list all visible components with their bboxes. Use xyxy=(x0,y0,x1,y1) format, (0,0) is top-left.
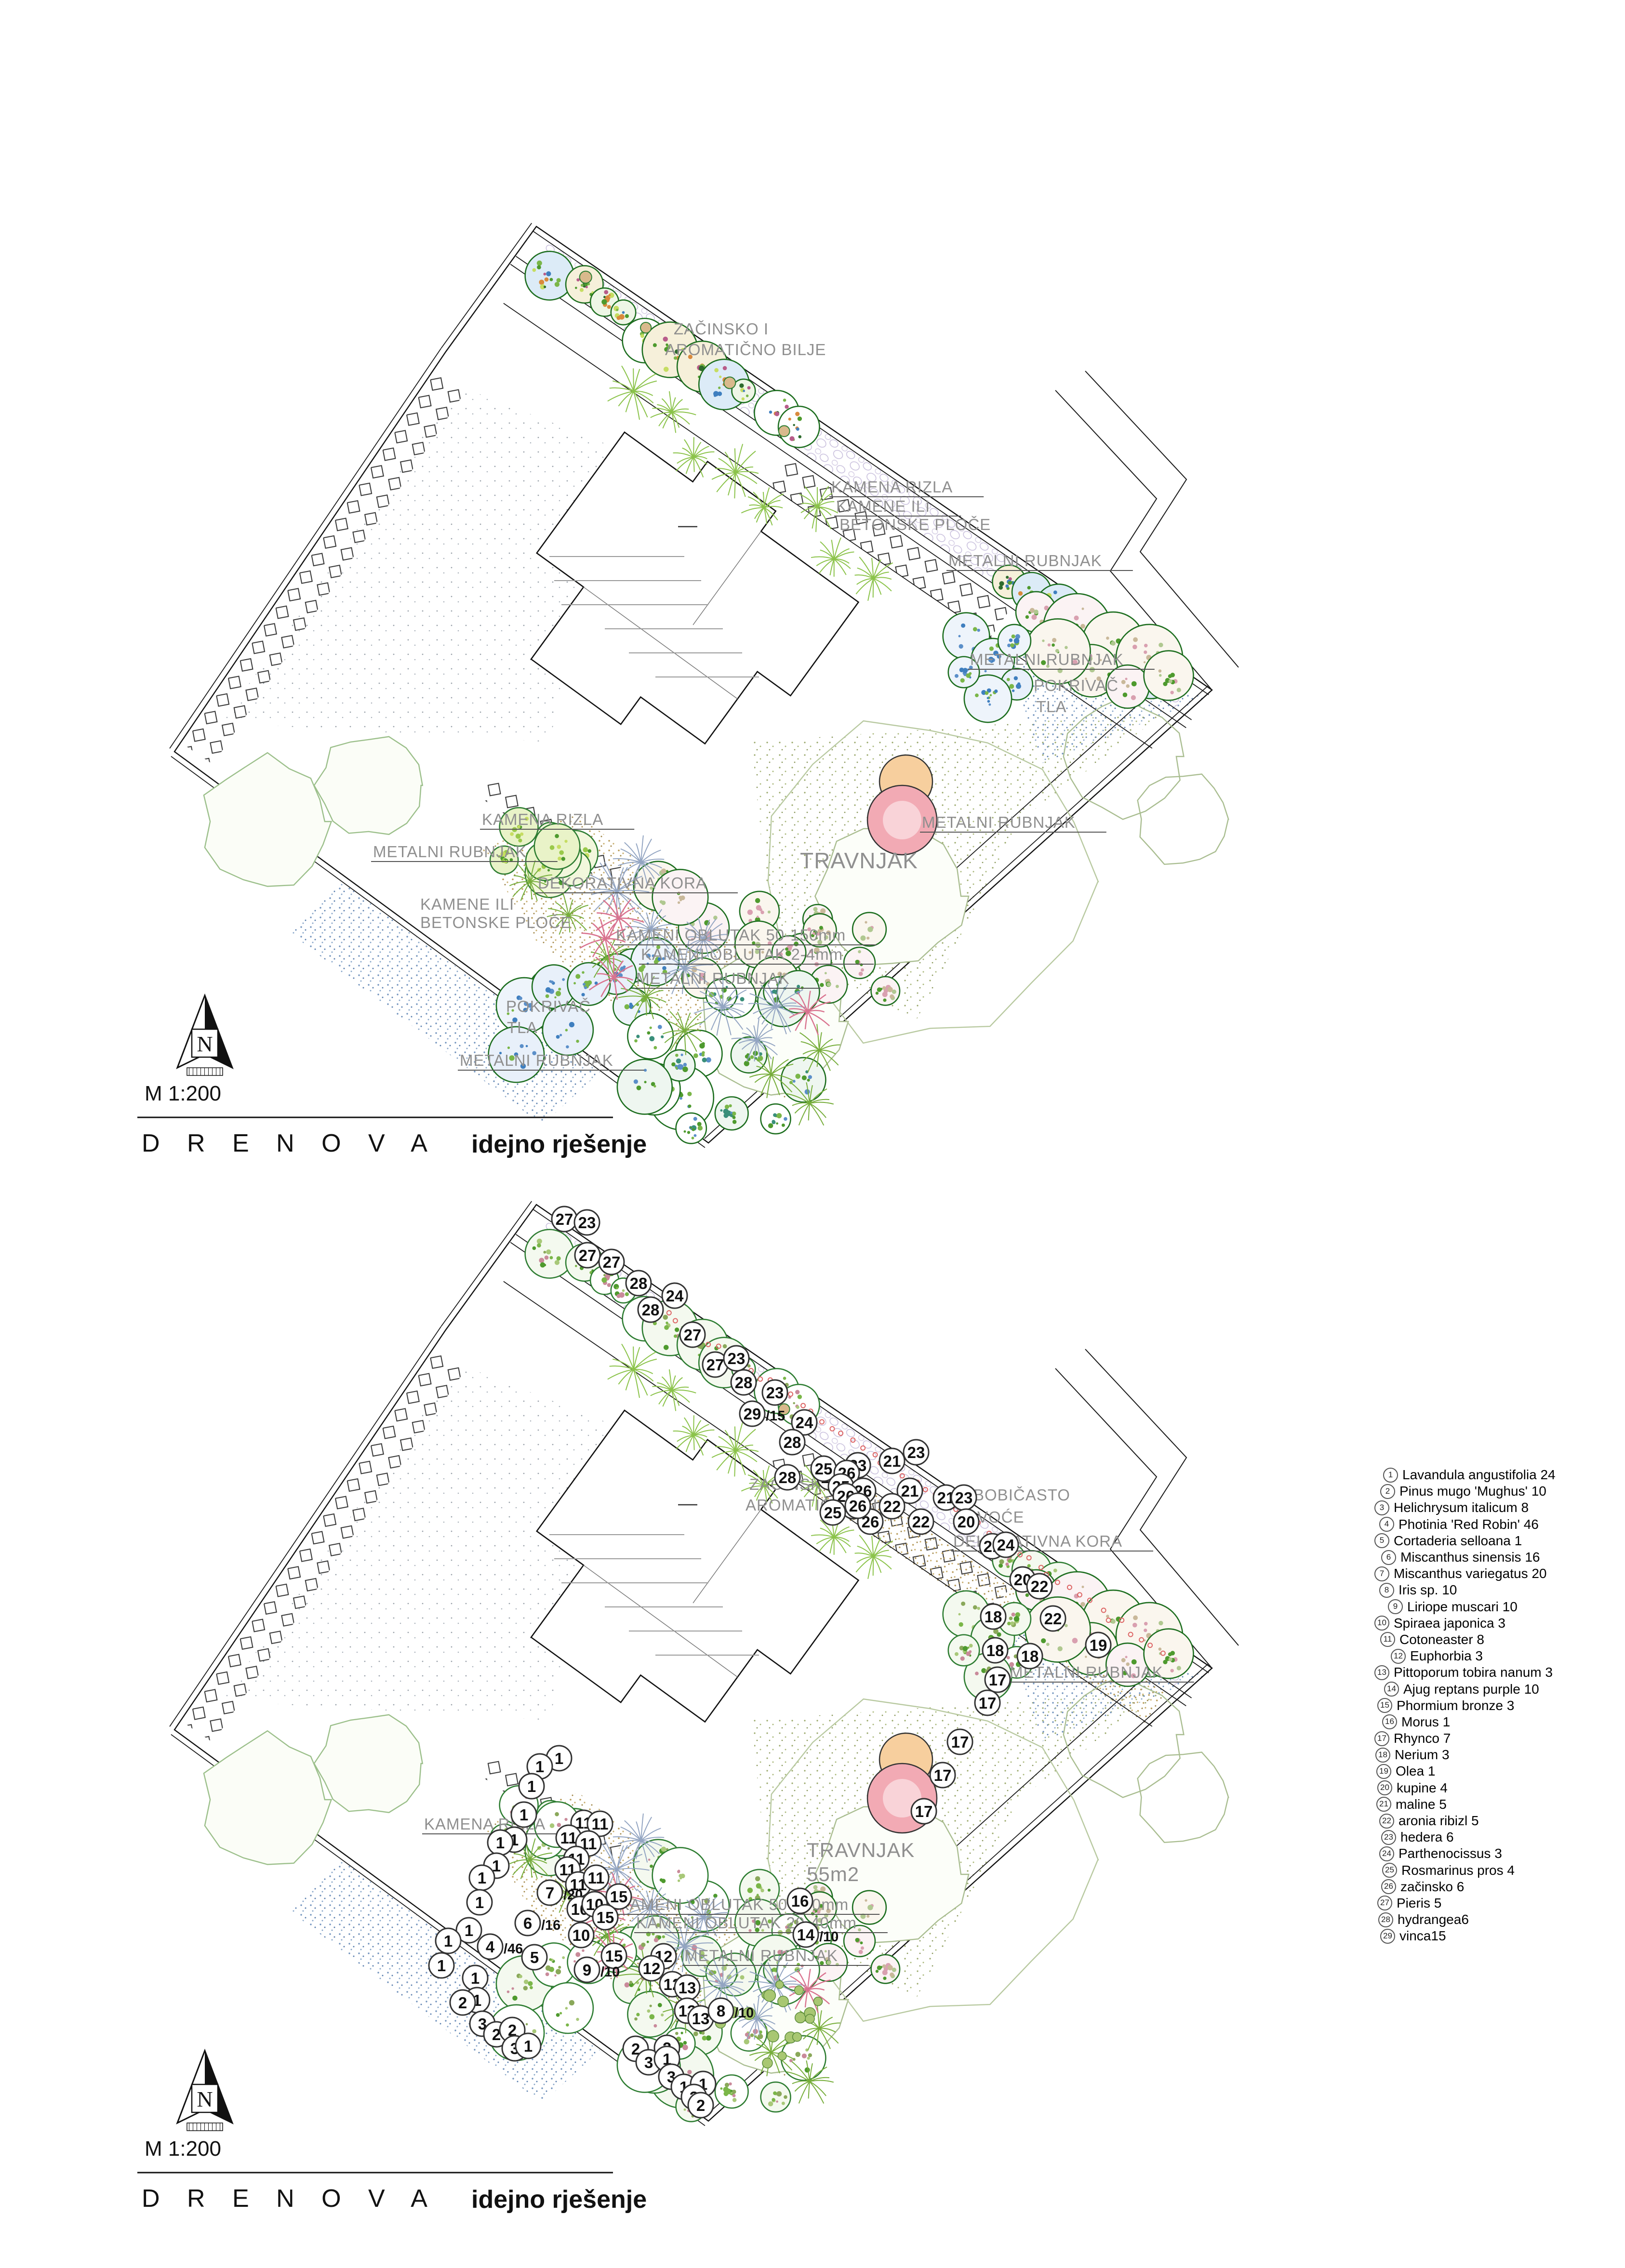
legend-item-text: Ajug reptans purple 10 xyxy=(1403,1682,1539,1697)
legend-item-number: 7 xyxy=(1374,1566,1389,1581)
svg-text:9: 9 xyxy=(583,1961,591,1979)
svg-text:27: 27 xyxy=(684,1326,702,1344)
svg-text:/46: /46 xyxy=(504,1941,523,1957)
svg-text:10: 10 xyxy=(573,1926,590,1944)
legend-item-number: 9 xyxy=(1388,1599,1403,1614)
legend-item: 5Cortaderia selloana 1 xyxy=(1374,1533,1615,1549)
svg-text:22: 22 xyxy=(883,1498,901,1515)
svg-text:1: 1 xyxy=(437,1957,446,1975)
legend-item-text: vinca15 xyxy=(1399,1928,1446,1944)
svg-text:1: 1 xyxy=(471,1969,480,1987)
plan-annotation: BOBIČASTO xyxy=(973,1486,1070,1504)
plant-marker: 23 xyxy=(951,1485,976,1510)
plan-annotation: KAMENI OBLUTAK 50-150mm xyxy=(619,1896,849,1913)
plan-annotation: METALNI RUBNJAK xyxy=(373,843,527,861)
plant-marker: 17 xyxy=(930,1763,955,1788)
legend-item-number: 16 xyxy=(1382,1714,1397,1729)
legend-item: 2Pinus mugo 'Mughus' 10 xyxy=(1374,1483,1615,1499)
svg-text:26: 26 xyxy=(849,1497,867,1515)
svg-text:15: 15 xyxy=(605,1947,623,1965)
legend-item: 26začinsko 6 xyxy=(1374,1879,1615,1895)
plant-marker: 28 xyxy=(780,1430,805,1455)
legend-item-number: 18 xyxy=(1375,1748,1390,1763)
svg-text:3: 3 xyxy=(644,2054,653,2071)
legend-item: 8Iris sp. 10 xyxy=(1374,1582,1615,1598)
plan-annotation: 55m2 xyxy=(807,1863,859,1885)
legend-item: 7Miscanthus variegatus 20 xyxy=(1374,1565,1615,1582)
legend-item-text: Miscanthus variegatus 20 xyxy=(1394,1566,1547,1581)
legend-item-text: Rosmarinus pros 4 xyxy=(1401,1863,1515,1878)
legend-item-text: Olea 1 xyxy=(1396,1764,1436,1779)
plan-annotation: POKRIVAČ xyxy=(506,997,591,1015)
svg-text:27: 27 xyxy=(556,1210,573,1228)
svg-text:18: 18 xyxy=(986,1642,1004,1659)
svg-text:23: 23 xyxy=(907,1444,925,1461)
legend-item-text: Morus 1 xyxy=(1401,1714,1450,1730)
svg-text:21: 21 xyxy=(901,1482,919,1500)
plan-annotation: TRAVNJAK xyxy=(807,1839,915,1861)
plant-marker: 1 xyxy=(429,1953,454,1978)
svg-text:23: 23 xyxy=(728,1350,746,1367)
svg-text:17: 17 xyxy=(951,1733,969,1751)
legend-item-text: aronia ribizl 5 xyxy=(1399,1813,1479,1829)
plan-annotation: METALNI RUBNJAK xyxy=(948,552,1102,570)
plant-marker: 1 xyxy=(436,1928,461,1953)
legend-item-number: 26 xyxy=(1381,1879,1396,1894)
legend-item-number: 28 xyxy=(1378,1912,1393,1927)
svg-text:2: 2 xyxy=(696,2096,705,2114)
legend-item: 15Phormium bronze 3 xyxy=(1374,1698,1615,1714)
plant-marker: 24 xyxy=(993,1532,1018,1557)
legend-item: 19Olea 1 xyxy=(1374,1763,1615,1779)
legend-item: 10Spiraea japonica 3 xyxy=(1374,1615,1615,1631)
legend-item-text: Spiraea japonica 3 xyxy=(1394,1616,1505,1631)
svg-text:23: 23 xyxy=(955,1489,973,1507)
legend-item: 1Lavandula angustifolia 24 xyxy=(1374,1467,1615,1483)
svg-text:23: 23 xyxy=(578,1214,596,1232)
legend-item-number: 6 xyxy=(1381,1550,1396,1565)
plant-marker: 1 xyxy=(519,1774,544,1799)
legend-item-text: Liriope muscari 10 xyxy=(1407,1599,1518,1615)
plant-marker: 18 xyxy=(1017,1644,1042,1669)
legend-item-number: 11 xyxy=(1380,1632,1395,1647)
svg-text:17: 17 xyxy=(934,1766,952,1784)
legend-item: 18Nerium 3 xyxy=(1374,1747,1615,1763)
plant-marker: 1 xyxy=(516,2033,541,2058)
svg-text:15: 15 xyxy=(597,1909,614,1926)
svg-text:29: 29 xyxy=(744,1405,761,1423)
svg-text:1: 1 xyxy=(475,1894,484,1911)
legend-item-text: začinsko 6 xyxy=(1400,1879,1464,1895)
svg-text:22: 22 xyxy=(912,1513,930,1531)
plant-marker: 10 xyxy=(569,1923,594,1948)
legend-item-text: Phormium bronze 3 xyxy=(1397,1698,1514,1713)
legend-item: 12Euphorbia 3 xyxy=(1374,1648,1615,1664)
svg-text:/15: /15 xyxy=(766,1408,785,1424)
legend-item: 23hedera 6 xyxy=(1374,1829,1615,1845)
plant-marker: 27 xyxy=(552,1207,577,1232)
plan-annotation: VOĆE xyxy=(977,1508,1025,1526)
svg-text:17: 17 xyxy=(979,1694,997,1712)
svg-text:1: 1 xyxy=(519,1806,528,1824)
svg-text:4: 4 xyxy=(486,1938,495,1956)
plant-marker: 23 xyxy=(574,1210,599,1235)
plan-annotation: BETONSKE PLOČE xyxy=(839,516,991,533)
legend-item-text: Rhynco 7 xyxy=(1394,1731,1451,1746)
svg-text:19: 19 xyxy=(1090,1636,1107,1654)
legend-item: 14Ajug reptans purple 10 xyxy=(1374,1681,1615,1697)
plan-annotation: AROMATIČNO BILJE xyxy=(665,341,826,358)
plan-annotation: KAMENA RIZLA xyxy=(482,810,603,828)
legend-item: 24Parthenocissus 3 xyxy=(1374,1845,1615,1862)
legend-item: 25Rosmarinus pros 4 xyxy=(1374,1862,1615,1879)
plant-marker: 5 xyxy=(522,1945,547,1970)
svg-text:6: 6 xyxy=(523,1914,532,1932)
svg-text:1: 1 xyxy=(555,1750,563,1767)
svg-text:21: 21 xyxy=(883,1452,901,1470)
svg-text:1: 1 xyxy=(535,1758,544,1776)
legend-item-text: Pinus mugo 'Mughus' 10 xyxy=(1399,1484,1546,1499)
legend-item: 11Cotoneaster 8 xyxy=(1374,1631,1615,1648)
svg-text:1: 1 xyxy=(478,1869,486,1887)
legend-item-number: 15 xyxy=(1377,1698,1392,1713)
plan-annotation: TRAVNJAK xyxy=(800,848,918,873)
plant-marker: 17 xyxy=(975,1690,1000,1715)
svg-text:22: 22 xyxy=(1044,1610,1062,1628)
plant-marker: 17 xyxy=(947,1729,972,1754)
plant-marker: 1 xyxy=(511,1802,536,1827)
legend-item: 21maline 5 xyxy=(1374,1796,1615,1813)
svg-text:28: 28 xyxy=(735,1374,753,1392)
plan-annotation: TLA xyxy=(507,1019,538,1036)
plant-marker: 23 xyxy=(762,1380,787,1405)
svg-text:1: 1 xyxy=(524,2037,533,2055)
plan-annotation: METALNI RUBNJAK xyxy=(922,813,1076,831)
plant-marker: 28 xyxy=(731,1370,756,1395)
plan-annotation: METALNI RUBNJAK xyxy=(970,650,1124,668)
plant-marker: 13 xyxy=(675,1975,700,2000)
plant-marker: 22 xyxy=(908,1509,933,1534)
svg-text:/16: /16 xyxy=(541,1918,560,1933)
svg-text:/10: /10 xyxy=(734,2005,754,2021)
plant-marker: 28 xyxy=(775,1465,800,1490)
plant-marker: 17 xyxy=(911,1799,936,1824)
legend-item-number: 29 xyxy=(1380,1929,1395,1944)
legend-item-text: Helichrysum italicum 8 xyxy=(1394,1500,1529,1515)
legend-item-number: 27 xyxy=(1377,1896,1392,1910)
legend-item-number: 22 xyxy=(1379,1814,1394,1829)
legend-item-text: Photinia 'Red Robin' 46 xyxy=(1399,1517,1539,1532)
legend-item-number: 10 xyxy=(1374,1616,1389,1631)
legend-item: 28hydrangea6 xyxy=(1374,1911,1615,1928)
legend-item-text: Cotoneaster 8 xyxy=(1399,1632,1484,1647)
svg-text:25: 25 xyxy=(815,1460,833,1478)
legend-item-number: 8 xyxy=(1379,1583,1394,1598)
plant-marker: 22 xyxy=(1027,1574,1052,1599)
plan-annotation: METALNI RUBNJAK xyxy=(684,1947,838,1964)
legend-item: 22aronia ribizl 5 xyxy=(1374,1813,1615,1829)
svg-text:27: 27 xyxy=(706,1356,724,1374)
plant-marker: 27 xyxy=(575,1243,600,1268)
plant-marker: 11 xyxy=(584,1865,609,1890)
plant-marker: 23 xyxy=(724,1346,749,1371)
legend-item-number: 17 xyxy=(1374,1731,1389,1746)
sheet: N M 1:200 D R E N O V A idejno rješenje … xyxy=(0,0,1625,2268)
legend-item: 20kupine 4 xyxy=(1374,1780,1615,1796)
legend-item-number: 3 xyxy=(1374,1500,1389,1515)
plan-annotation: METALNI RUBNJAK xyxy=(636,969,790,987)
plant-marker: 2 xyxy=(688,2093,713,2118)
svg-text:13: 13 xyxy=(679,1979,696,1997)
svg-text:5: 5 xyxy=(530,1949,539,1966)
legend-item: 17Rhynco 7 xyxy=(1374,1730,1615,1747)
svg-text:11: 11 xyxy=(592,1815,609,1833)
svg-text:8: 8 xyxy=(717,2002,725,2020)
legend-item-text: Parthenocissus 3 xyxy=(1399,1846,1502,1861)
svg-text:17: 17 xyxy=(989,1671,1007,1689)
plant-marker: 21 xyxy=(879,1448,905,1473)
svg-text:11: 11 xyxy=(588,1869,605,1887)
svg-text:28: 28 xyxy=(630,1274,648,1292)
legend-item: 3Helichrysum italicum 8 xyxy=(1374,1499,1615,1516)
svg-text:14: 14 xyxy=(797,1926,815,1944)
plant-marker: 22 xyxy=(1040,1606,1066,1631)
svg-text:28: 28 xyxy=(784,1433,801,1451)
legend-item-number: 4 xyxy=(1379,1517,1394,1532)
plant-marker: 28 xyxy=(638,1297,663,1322)
svg-text:24: 24 xyxy=(666,1287,684,1305)
plant-marker: 1 xyxy=(463,1965,488,1990)
svg-text:/10: /10 xyxy=(819,1929,839,1945)
svg-text:/10: /10 xyxy=(600,1964,620,1980)
plant-marker: 1 xyxy=(469,1865,494,1890)
plant-marker: 2 xyxy=(450,1990,475,2015)
legend-item-number: 1 xyxy=(1383,1468,1398,1483)
legend-item-number: 5 xyxy=(1374,1533,1389,1548)
svg-text:15: 15 xyxy=(610,1888,628,1906)
legend-item-text: Pieris 5 xyxy=(1397,1896,1441,1911)
legend-item-text: Iris sp. 10 xyxy=(1399,1582,1457,1598)
svg-text:12: 12 xyxy=(643,1960,661,1977)
plant-marker: 22 xyxy=(879,1494,905,1519)
svg-text:24: 24 xyxy=(796,1414,813,1432)
svg-text:17: 17 xyxy=(915,1803,933,1820)
plant-marker: 16 xyxy=(787,1888,812,1913)
svg-text:28: 28 xyxy=(779,1469,797,1486)
plant-marker: 24 xyxy=(662,1283,687,1308)
legend-item-number: 19 xyxy=(1376,1764,1391,1779)
legend-item: 9Liriope muscari 10 xyxy=(1374,1599,1615,1615)
svg-text:27: 27 xyxy=(579,1247,597,1264)
plan-annotation: DEKORATIVNA KORA xyxy=(538,874,707,892)
plan-annotation: POKRIVAČ xyxy=(1034,676,1119,694)
legend-item-number: 20 xyxy=(1377,1780,1392,1795)
legend-item: 29vinca15 xyxy=(1374,1928,1615,1944)
plant-marker: 4/46 xyxy=(478,1934,523,1959)
legend-item-number: 25 xyxy=(1382,1863,1397,1878)
plan-annotation: KAMENE ILI xyxy=(420,895,514,913)
legend-item: 4Photinia 'Red Robin' 46 xyxy=(1374,1516,1615,1533)
plant-marker: 19 xyxy=(1086,1632,1111,1658)
svg-text:20: 20 xyxy=(958,1513,975,1531)
plan-annotation: DEKORATIVNA KORA xyxy=(953,1532,1122,1550)
legend-item-text: hydrangea6 xyxy=(1398,1912,1469,1927)
legend-item-number: 2 xyxy=(1380,1484,1395,1499)
plan-annotation: BETONSKE PLOČE xyxy=(420,914,572,931)
legend-item: 27Pieris 5 xyxy=(1374,1895,1615,1911)
svg-text:24: 24 xyxy=(997,1536,1015,1554)
legend-item-text: Miscanthus sinensis 16 xyxy=(1400,1550,1540,1565)
plant-marker: 28 xyxy=(626,1271,651,1296)
plant-marker: 27 xyxy=(599,1249,624,1274)
svg-text:18: 18 xyxy=(985,1608,1002,1626)
svg-text:1: 1 xyxy=(496,1834,505,1852)
plant-marker: 18 xyxy=(981,1604,1006,1629)
legend-item-text: Euphorbia 3 xyxy=(1410,1648,1483,1664)
legend-item-number: 13 xyxy=(1374,1665,1389,1680)
legend-item-number: 21 xyxy=(1376,1797,1391,1812)
plan-annotation: TLA xyxy=(1036,698,1067,716)
plant-marker: 15 xyxy=(593,1905,618,1930)
plan-annotation: METALNI RUBNJAK xyxy=(460,1051,613,1069)
legend-item-text: maline 5 xyxy=(1396,1797,1447,1812)
plan-annotation: KAMENE ILI xyxy=(836,497,930,515)
plan-annotation: KAMENA RIZLA xyxy=(831,478,953,496)
svg-text:22: 22 xyxy=(1031,1578,1049,1595)
legend-item-text: kupine 4 xyxy=(1397,1780,1448,1796)
plant-marker: 26 xyxy=(845,1493,870,1518)
svg-text:1: 1 xyxy=(527,1777,536,1795)
plant-legend: 1Lavandula angustifolia 242Pinus mugo 'M… xyxy=(1374,1467,1615,1944)
plan-annotation: KAMENI OBLUTAK 2-4mm xyxy=(641,945,843,963)
plant-marker: 17 xyxy=(985,1667,1010,1692)
plant-marker: 23 xyxy=(904,1440,929,1465)
plant-marker: 18 xyxy=(983,1638,1008,1663)
legend-item-text: Nerium 3 xyxy=(1395,1747,1450,1763)
svg-text:11: 11 xyxy=(560,1829,577,1847)
svg-text:1: 1 xyxy=(444,1932,453,1950)
legend-item-text: Cortaderia selloana 1 xyxy=(1394,1533,1522,1549)
svg-text:2: 2 xyxy=(458,1994,467,2012)
svg-text:23: 23 xyxy=(766,1384,784,1402)
legend-item: 13Pittoporum tobira nanum 3 xyxy=(1374,1664,1615,1681)
svg-text:13: 13 xyxy=(692,2010,710,2028)
legend-item-number: 24 xyxy=(1379,1846,1394,1861)
plant-marker: 27 xyxy=(680,1322,705,1347)
svg-text:18: 18 xyxy=(1021,1647,1039,1665)
plant-marker: 1 xyxy=(467,1890,492,1915)
plant-marker: 1 xyxy=(488,1830,513,1855)
legend-item: 6Miscanthus sinensis 16 xyxy=(1374,1549,1615,1565)
plan-annotation: ZAČINSKO I xyxy=(674,320,769,338)
plant-marker: 20 xyxy=(954,1509,979,1534)
plant-marker: 12 xyxy=(639,1956,664,1981)
legend-item-text: Pittoporum tobira nanum 3 xyxy=(1394,1665,1553,1680)
svg-text:7: 7 xyxy=(546,1884,554,1902)
legend-item: 16Morus 1 xyxy=(1374,1714,1615,1730)
svg-text:25: 25 xyxy=(824,1504,842,1522)
legend-item-number: 14 xyxy=(1384,1682,1399,1697)
legend-item-number: 23 xyxy=(1381,1830,1396,1845)
legend-item-text: Lavandula angustifolia 24 xyxy=(1402,1467,1556,1483)
plan-annotation: KAMENI OBLUTAK 50-150mm xyxy=(616,926,846,944)
plant-marker: 25 xyxy=(820,1500,845,1525)
svg-text:27: 27 xyxy=(603,1253,621,1271)
legend-item-number: 12 xyxy=(1391,1649,1406,1664)
svg-text:28: 28 xyxy=(642,1301,660,1319)
svg-text:1: 1 xyxy=(465,1922,473,1939)
svg-text:16: 16 xyxy=(791,1892,809,1910)
legend-item-text: hedera 6 xyxy=(1400,1830,1454,1845)
